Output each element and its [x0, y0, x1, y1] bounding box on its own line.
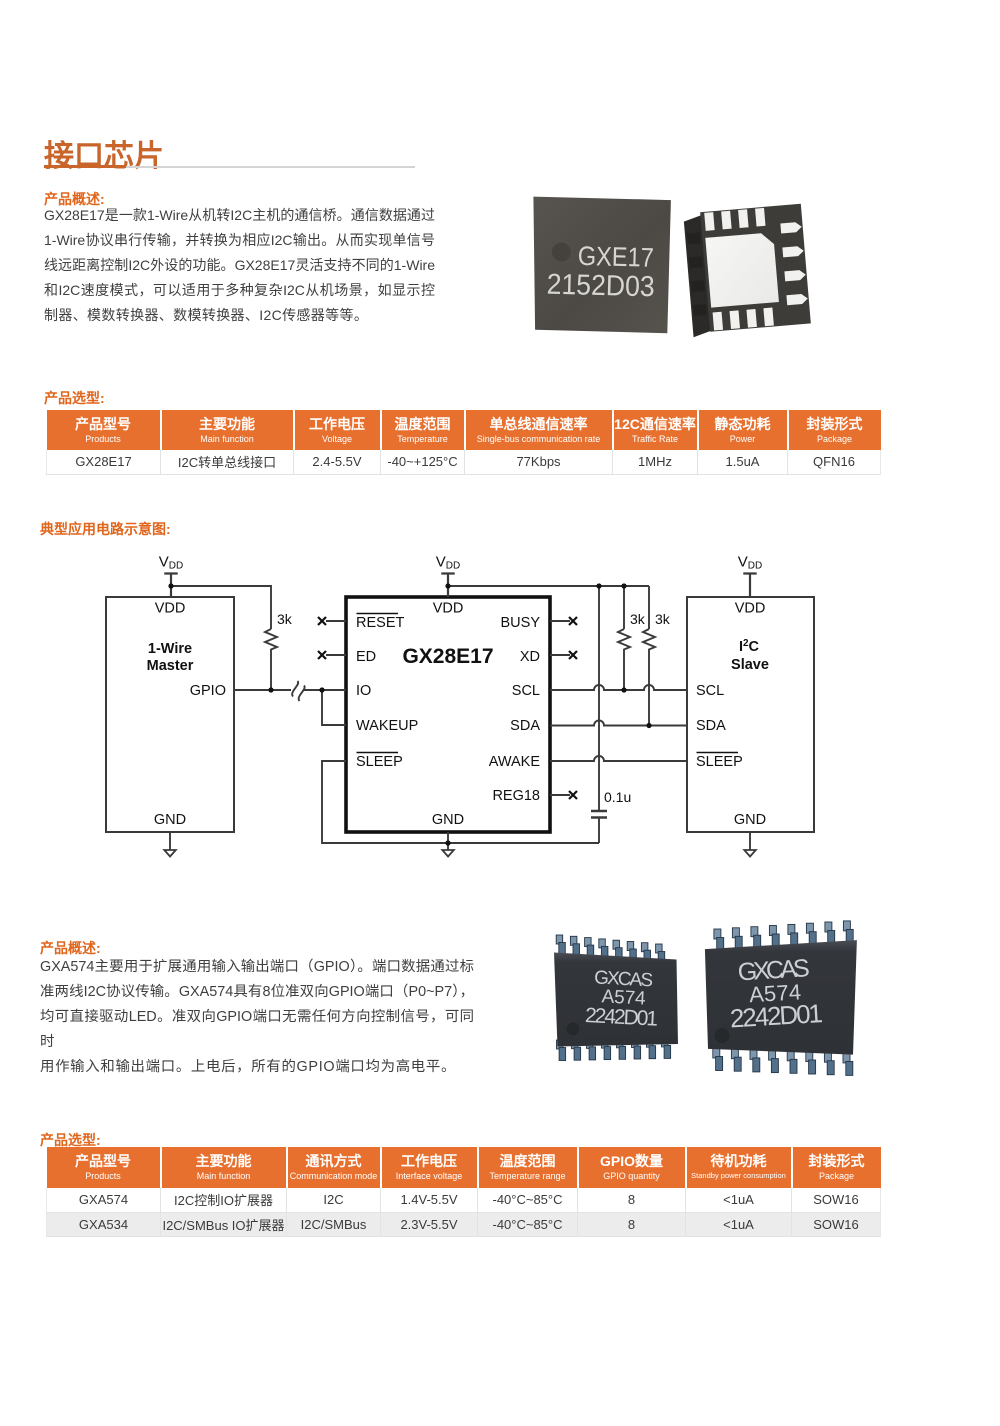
svg-text:I2C: I2C	[739, 638, 760, 655]
svg-text:GXE17: GXE17	[577, 241, 654, 273]
svg-text:REG18: REG18	[492, 788, 540, 804]
svg-text:SCL: SCL	[512, 683, 540, 699]
svg-text:0.1u: 0.1u	[604, 789, 631, 805]
svg-text:Master: Master	[147, 658, 194, 674]
svg-text:WAKEUP: WAKEUP	[356, 718, 418, 734]
svg-text:ED: ED	[356, 649, 376, 665]
svg-text:SLEEP: SLEEP	[356, 754, 403, 770]
svg-text:GPIO: GPIO	[190, 683, 226, 699]
svg-text:1-Wire: 1-Wire	[148, 641, 192, 657]
svg-text:SDA: SDA	[510, 718, 540, 734]
svg-text:3k: 3k	[630, 611, 646, 627]
svg-text:SDA: SDA	[696, 718, 726, 734]
svg-text:RESET: RESET	[356, 615, 404, 631]
svg-text:Slave: Slave	[731, 657, 769, 673]
svg-text:VDD: VDD	[433, 601, 464, 617]
svg-text:GND: GND	[154, 812, 186, 828]
svg-text:VDD: VDD	[155, 601, 186, 617]
svg-text:3k: 3k	[277, 611, 293, 627]
svg-text:XD: XD	[520, 649, 540, 665]
svg-text:2242D01: 2242D01	[585, 1004, 659, 1031]
svg-text:2242D01: 2242D01	[729, 998, 824, 1033]
svg-text:VDD: VDD	[159, 554, 183, 572]
svg-text:GND: GND	[734, 812, 766, 828]
svg-text:GX28E17: GX28E17	[402, 645, 493, 668]
svg-text:AWAKE: AWAKE	[489, 754, 541, 770]
svg-text:3k: 3k	[655, 611, 671, 627]
svg-text:VDD: VDD	[436, 554, 460, 572]
svg-text:BUSY: BUSY	[501, 615, 541, 631]
svg-text:IO: IO	[356, 683, 371, 699]
svg-text:2152D03: 2152D03	[546, 269, 655, 304]
svg-text:VDD: VDD	[735, 601, 766, 617]
svg-text:SCL: SCL	[696, 683, 724, 699]
svg-text:VDD: VDD	[738, 554, 762, 572]
svg-text:GND: GND	[432, 812, 464, 828]
svg-text:SLEEP: SLEEP	[696, 754, 743, 770]
